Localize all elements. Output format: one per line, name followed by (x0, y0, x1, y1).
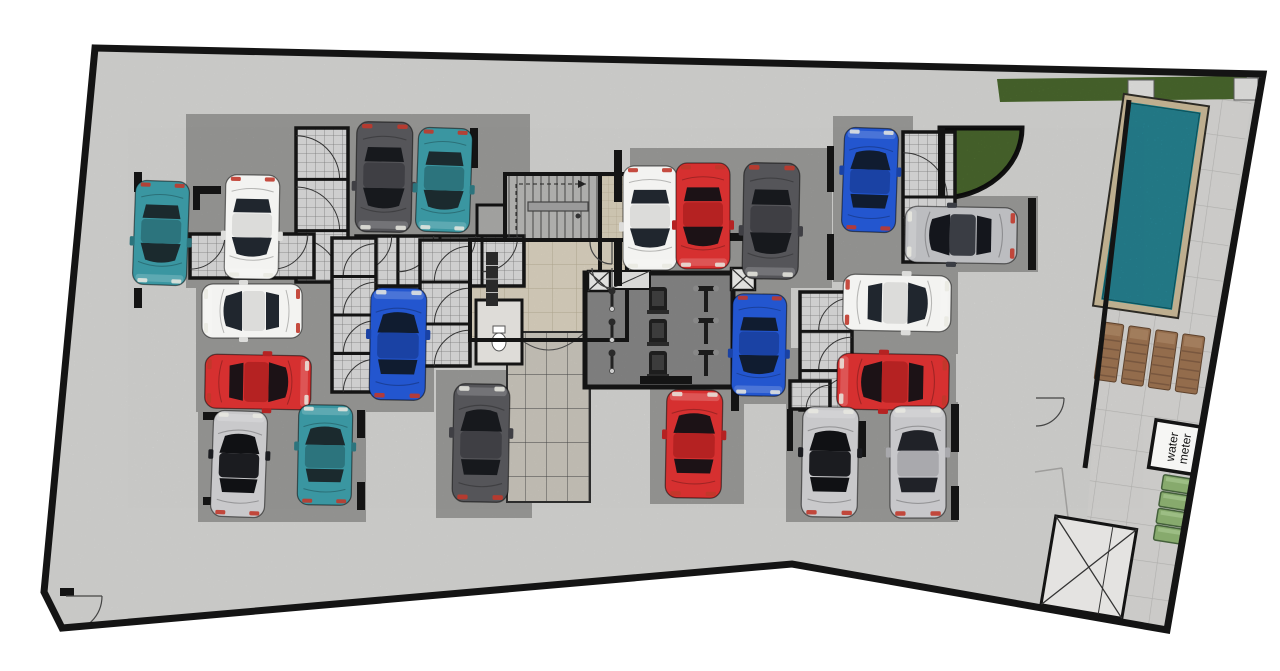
wall-stub (938, 128, 945, 198)
wall-stub (357, 482, 365, 510)
car-red (661, 389, 727, 498)
wall-stub (787, 409, 793, 451)
wall-stub (951, 404, 959, 452)
car-white (202, 280, 302, 342)
car-blue (837, 127, 903, 233)
car-blue (365, 287, 431, 400)
car-red (204, 350, 311, 414)
wall-stub (827, 234, 834, 280)
wall-stub (614, 150, 622, 202)
wall-stub (951, 486, 959, 520)
car-silverdark (904, 202, 1017, 268)
gym-treadmill-icon (647, 287, 669, 314)
car-teal (293, 404, 357, 505)
storage-room (420, 240, 470, 366)
car-white (619, 166, 681, 270)
car-silver (886, 406, 950, 518)
storage-room (790, 381, 830, 409)
car-teal (128, 180, 194, 286)
wall-stub (60, 588, 74, 596)
shaft-xbox (588, 271, 610, 291)
wall-stub (134, 288, 142, 308)
car-blue (727, 293, 791, 396)
car-darkgray (448, 383, 514, 502)
car-red (836, 349, 949, 415)
wall-stub (193, 194, 200, 210)
wall-stub (357, 410, 365, 438)
floor-plan-page: watermeter (0, 0, 1280, 671)
plan-interior: watermeter (44, 48, 1263, 632)
gym-treadmill-icon (647, 351, 669, 378)
wall-stub (1028, 198, 1036, 270)
wall-stub (827, 146, 834, 192)
floor-plan-svg: watermeter (0, 0, 1280, 671)
car-teal (411, 127, 477, 233)
x-braced-room (1041, 516, 1137, 618)
car-darkgray (351, 121, 417, 232)
car-red (672, 163, 734, 269)
car-blacksilver (797, 406, 863, 517)
car-blacksilver (206, 410, 272, 518)
car-white (842, 270, 951, 336)
wall-stub (614, 240, 622, 286)
gym-treadmill-icon (647, 319, 669, 346)
car-darkgray (738, 162, 804, 279)
wall-stub (193, 186, 221, 194)
car-white (220, 174, 284, 279)
wall-stub (640, 376, 692, 384)
